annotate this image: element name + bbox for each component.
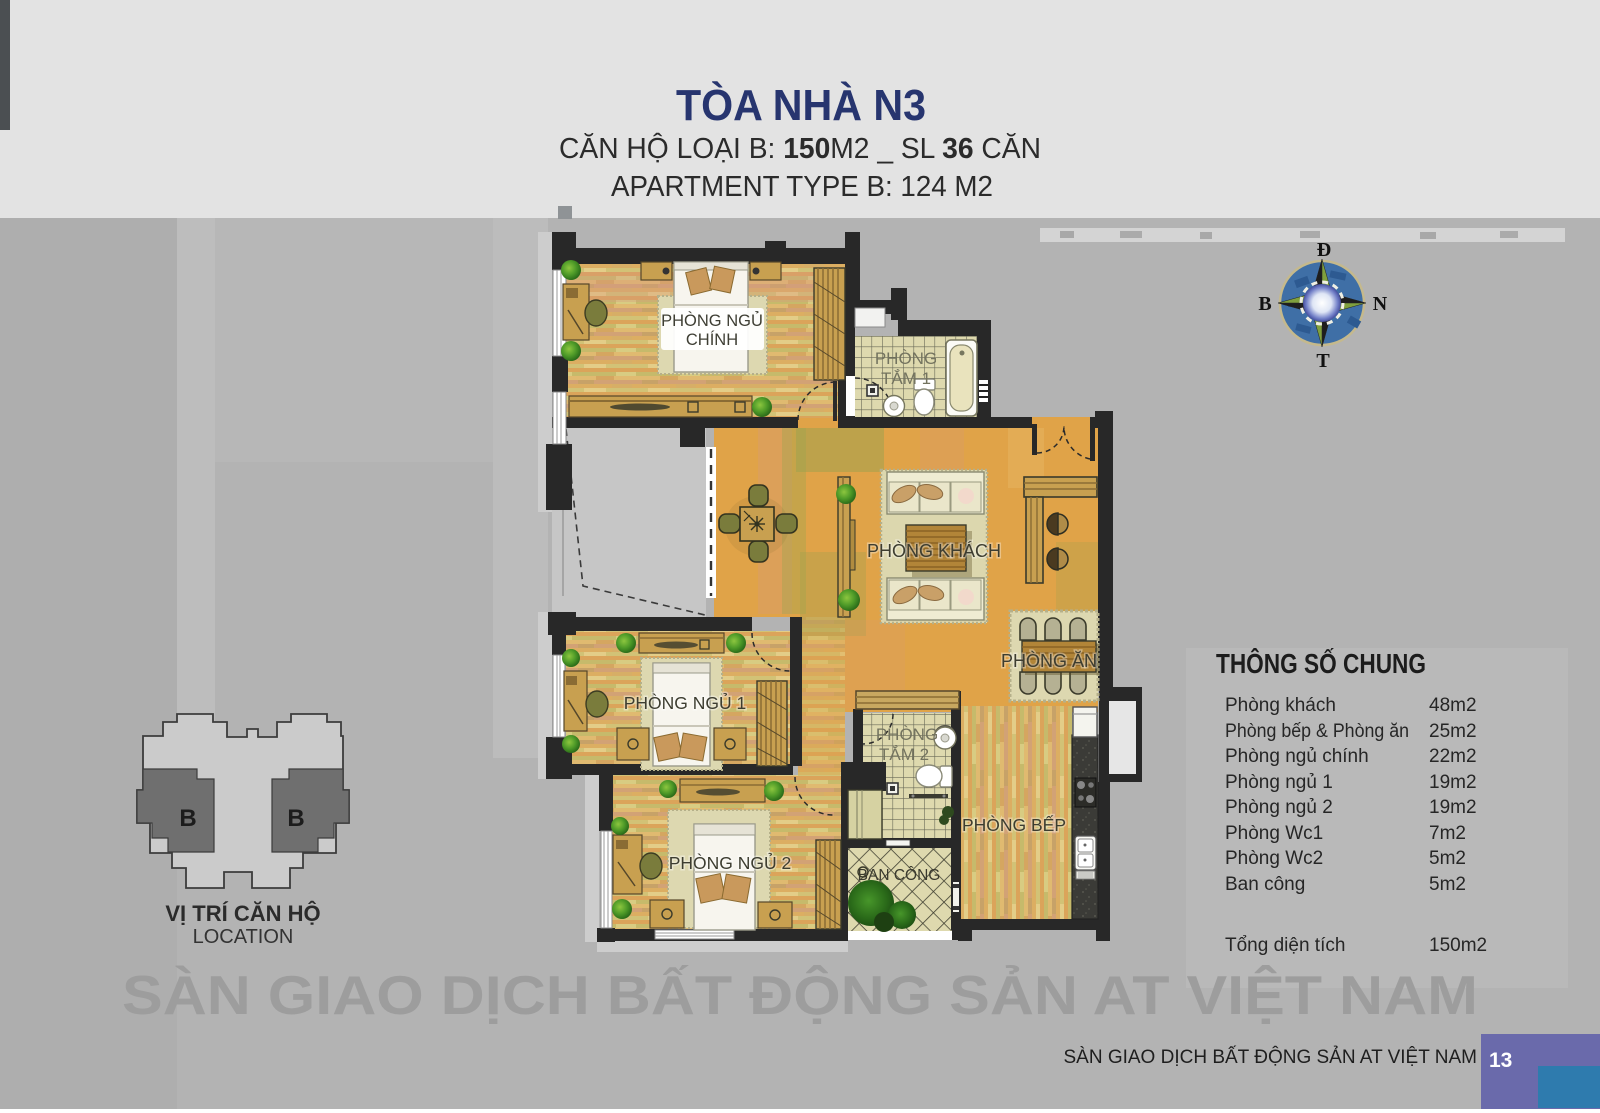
svg-text:Tổng diện tích: Tổng diện tích [1225, 935, 1345, 956]
svg-text:Phòng Wc2: Phòng Wc2 [1225, 848, 1323, 869]
svg-text:CHÍNH: CHÍNH [686, 330, 738, 349]
svg-text:B: B [287, 805, 304, 832]
svg-text:Phòng Wc1: Phòng Wc1 [1225, 823, 1323, 844]
svg-text:SÀN GIAO DỊCH BẤT ĐỘNG SẢN AT: SÀN GIAO DỊCH BẤT ĐỘNG SẢN AT VIỆT NAM [122, 964, 1478, 1026]
svg-text:THÔNG SỐ CHUNG: THÔNG SỐ CHUNG [1216, 647, 1426, 679]
svg-text:5m2: 5m2 [1429, 874, 1466, 895]
svg-text:SÀN GIAO DỊCH BẤT ĐỘNG SẢN AT: SÀN GIAO DỊCH BẤT ĐỘNG SẢN AT VIỆT NAM [1063, 1046, 1477, 1068]
svg-text:19m2: 19m2 [1429, 772, 1477, 793]
svg-text:Đ: Đ [1317, 239, 1331, 261]
svg-text:APARTMENT TYPE B: 124 M2: APARTMENT TYPE B: 124 M2 [611, 171, 993, 203]
svg-text:PHÒNG BẾP: PHÒNG BẾP [962, 814, 1066, 835]
svg-text:Phòng ngủ 1: Phòng ngủ 1 [1225, 772, 1333, 793]
svg-text:PHÒNG: PHÒNG [875, 349, 937, 368]
svg-text:Phòng ngủ chính: Phòng ngủ chính [1225, 746, 1369, 767]
svg-text:TẮM 2: TẮM 2 [879, 745, 929, 764]
svg-text:VỊ TRÍ CĂN HỘ: VỊ TRÍ CĂN HỘ [165, 901, 320, 926]
svg-text:LOCATION: LOCATION [193, 926, 294, 948]
svg-text:48m2: 48m2 [1429, 695, 1477, 716]
svg-text:25m2: 25m2 [1429, 721, 1477, 742]
svg-text:PHÒNG KHÁCH: PHÒNG KHÁCH [867, 540, 1001, 561]
svg-text:B: B [1258, 293, 1271, 315]
svg-text:7m2: 7m2 [1429, 823, 1466, 844]
svg-text:B: B [179, 805, 196, 832]
svg-text:Phòng bếp & Phòng ăn: Phòng bếp & Phòng ăn [1225, 721, 1409, 742]
svg-text:Ban công: Ban công [1225, 874, 1305, 895]
svg-text:PHÒNG ĂN: PHÒNG ĂN [1001, 650, 1097, 671]
svg-text:19m2: 19m2 [1429, 797, 1477, 818]
svg-text:PHÒNG: PHÒNG [876, 725, 938, 744]
svg-text:TẮM 1: TẮM 1 [881, 369, 931, 388]
svg-text:CĂN HỘ LOẠI B: 150M2 _ SL 36 C: CĂN HỘ LOẠI B: 150M2 _ SL 36 CĂN [559, 131, 1041, 165]
svg-text:22m2: 22m2 [1429, 746, 1477, 767]
svg-text:Phòng khách: Phòng khách [1225, 695, 1336, 716]
svg-text:TÒA NHÀ N3: TÒA NHÀ N3 [676, 80, 926, 130]
svg-text:150m2: 150m2 [1429, 935, 1487, 956]
svg-text:PHÒNG NGỦ 1: PHÒNG NGỦ 1 [624, 692, 747, 713]
svg-text:N: N [1373, 293, 1388, 315]
svg-text:Phòng ngủ 2: Phòng ngủ 2 [1225, 797, 1333, 818]
svg-text:13: 13 [1489, 1049, 1512, 1072]
svg-text:PHÒNG NGỦ 2: PHÒNG NGỦ 2 [669, 852, 792, 873]
svg-text:T: T [1316, 350, 1330, 372]
svg-text:5m2: 5m2 [1429, 848, 1466, 869]
svg-text:PHÒNG NGỦ: PHÒNG NGỦ [661, 311, 763, 330]
svg-text:BAN CÔNG: BAN CÔNG [858, 867, 941, 884]
